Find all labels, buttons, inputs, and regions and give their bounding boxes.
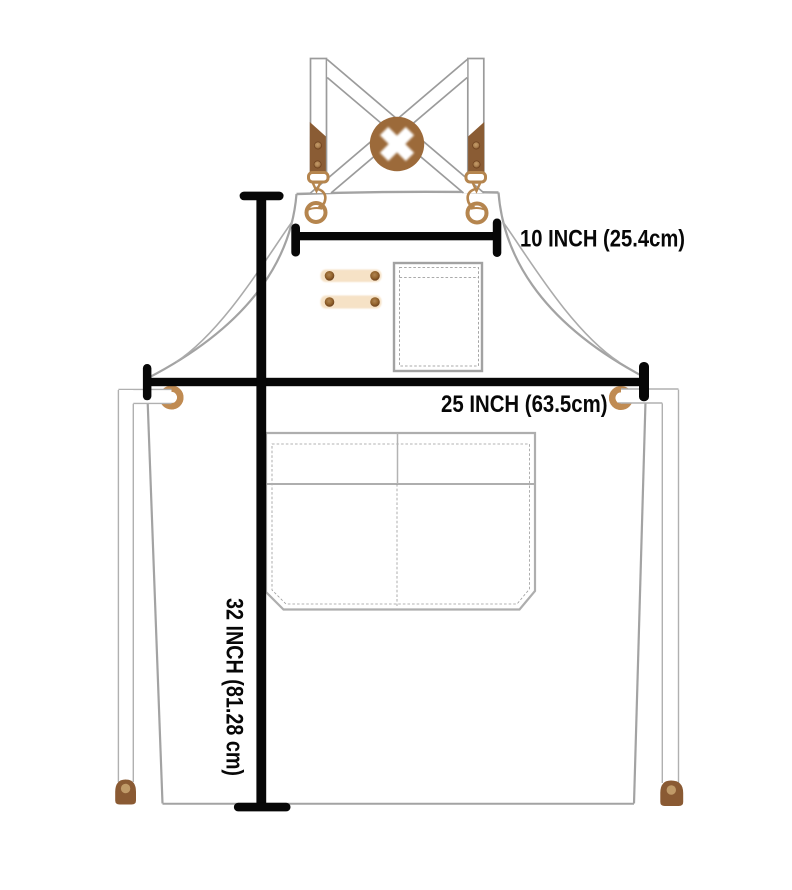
svg-text:32 INCH (81.28 cm): 32 INCH (81.28 cm): [221, 598, 248, 776]
svg-text:25 INCH (63.5cm): 25 INCH (63.5cm): [441, 391, 608, 418]
svg-text:10 INCH (25.4cm): 10 INCH (25.4cm): [520, 226, 685, 253]
